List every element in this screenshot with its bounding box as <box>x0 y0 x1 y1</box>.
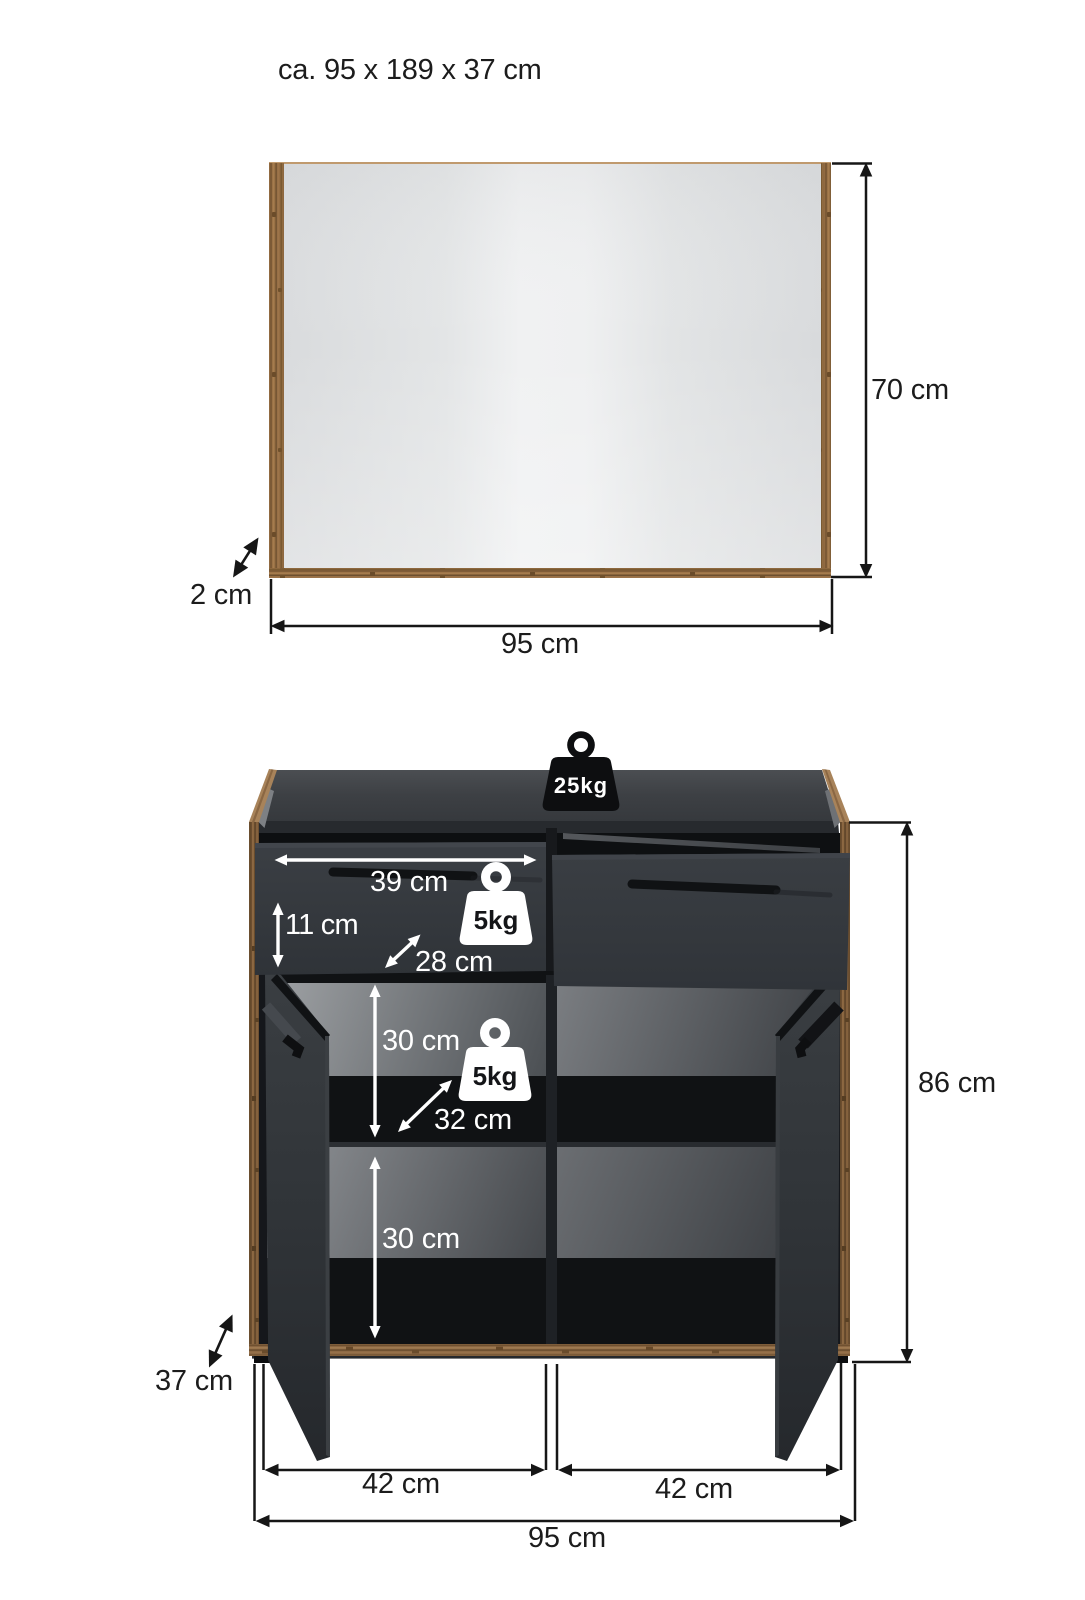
svg-text:42 cm: 42 cm <box>362 1468 440 1500</box>
svg-text:30 cm: 30 cm <box>382 1025 460 1057</box>
svg-text:5kg: 5kg <box>474 905 519 935</box>
svg-text:37 cm: 37 cm <box>155 1365 233 1397</box>
svg-text:39 cm: 39 cm <box>370 866 448 898</box>
svg-text:2 cm: 2 cm <box>190 579 252 611</box>
svg-text:95 cm: 95 cm <box>501 628 579 660</box>
svg-text:30 cm: 30 cm <box>382 1223 460 1255</box>
svg-text:ca. 95 x 189 x 37 cm: ca. 95 x 189 x 37 cm <box>278 54 542 86</box>
svg-text:86 cm: 86 cm <box>918 1067 996 1099</box>
svg-text:42 cm: 42 cm <box>655 1473 733 1505</box>
svg-text:70 cm: 70 cm <box>871 374 949 406</box>
svg-text:32 cm: 32 cm <box>434 1104 512 1136</box>
svg-text:25kg: 25kg <box>554 773 608 798</box>
svg-text:5kg: 5kg <box>473 1061 518 1091</box>
svg-text:95 cm: 95 cm <box>528 1522 606 1554</box>
svg-text:28 cm: 28 cm <box>415 946 493 978</box>
svg-text:11 cm: 11 cm <box>285 909 358 941</box>
